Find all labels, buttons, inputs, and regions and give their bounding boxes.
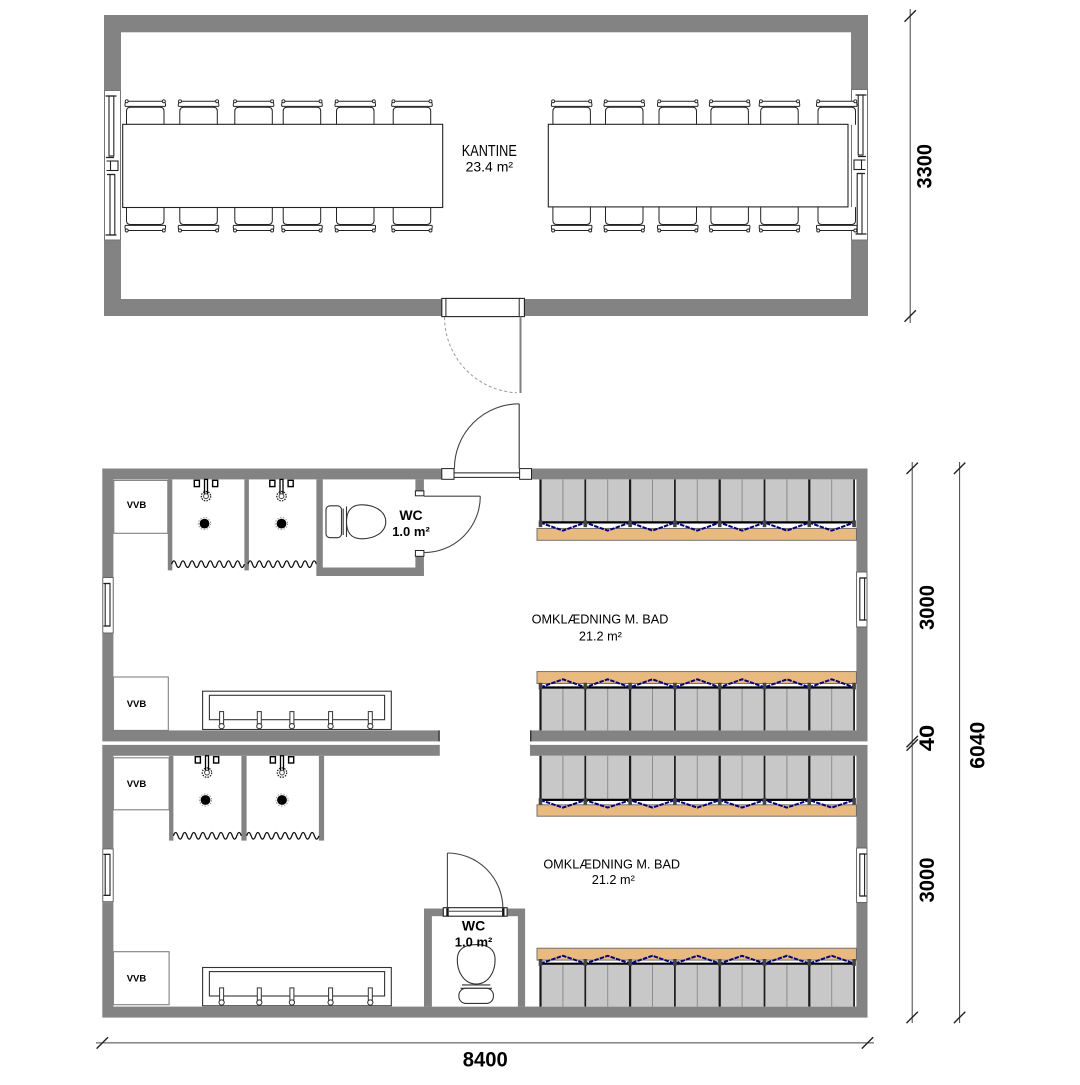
svg-text:WC: WC: [399, 507, 422, 523]
svg-text:VVB: VVB: [127, 699, 147, 710]
svg-text:6040: 6040: [965, 722, 989, 769]
svg-text:3000: 3000: [915, 857, 939, 902]
svg-text:WC: WC: [462, 918, 485, 934]
svg-text:21.2 m²: 21.2 m²: [579, 630, 622, 644]
svg-text:3000: 3000: [915, 585, 939, 630]
svg-text:3300: 3300: [913, 144, 937, 189]
svg-text:21.2 m²: 21.2 m²: [592, 873, 635, 887]
svg-text:OMKLÆDNING M. BAD: OMKLÆDNING M. BAD: [543, 857, 680, 871]
svg-text:40: 40: [915, 725, 939, 752]
svg-text:1.0 m²: 1.0 m²: [392, 524, 430, 539]
svg-text:VVB: VVB: [127, 500, 147, 511]
svg-text:VVB: VVB: [127, 779, 147, 790]
svg-text:23.4 m²: 23.4 m²: [466, 159, 514, 175]
svg-text:1.0 m²: 1.0 m²: [455, 934, 493, 949]
svg-text:8400: 8400: [463, 1048, 508, 1072]
svg-text:OMKLÆDNING M. BAD: OMKLÆDNING M. BAD: [532, 612, 669, 626]
svg-text:VVB: VVB: [127, 974, 147, 985]
